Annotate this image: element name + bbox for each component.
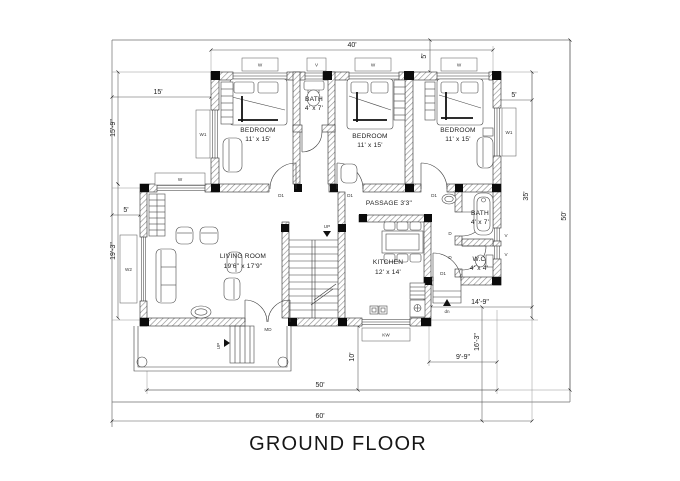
wardrobe-bedroom2 [394,80,405,120]
svg-text:D1: D1 [278,193,284,198]
window1-label: W1 [506,130,513,135]
rear-steps-arrow [443,299,451,306]
dim-15ft: 15' [153,89,162,96]
porch-up-label: UP [216,343,221,349]
dim-16ft3: 16'-3" [474,333,481,351]
veranda: UP [134,326,291,371]
bedroom1-size: 11' x 15' [245,136,270,143]
dim-5ft-left: 5' [123,207,128,214]
bath-right-name: BATH [471,210,489,217]
bedroom3-size: 11' x 15' [445,136,470,143]
window1-label: W1 [200,132,207,137]
chair-bedroom2 [341,164,357,183]
window-label: W [258,63,263,68]
ventilator-bath-top: V [305,58,326,79]
chair-bedroom1 [223,138,242,172]
window-living-top: W [155,173,205,191]
armchair-living-1 [176,227,193,244]
armchair-living-2 [200,227,218,244]
dim-14ft9: 14'-9" [471,299,489,306]
dim-35ft: 35' [523,191,530,200]
armchair-living-4 [224,278,240,300]
dim-9ft9: 9'-9" [456,354,470,361]
svg-text:D1: D1 [440,271,446,276]
page-title: GROUND FLOOR [249,433,427,455]
door-bedroom1: D1 [270,163,296,198]
fridge-kitchen [410,283,425,299]
svg-text:D1: D1 [347,193,353,198]
window2-label: W2 [125,267,132,272]
kitchen-size: 12' x 14' [375,269,401,276]
dim-5ft-right: 5' [511,92,516,99]
rear-down-label: dn [444,309,450,314]
porch-up-arrow [224,339,230,347]
window-bedroom1: W [233,58,287,79]
basin-lobby [442,194,456,204]
ventilator-label: V [504,252,508,257]
bedroom1-name: BEDROOM [240,127,275,134]
sofa-living [156,249,176,303]
bath-right-size: 4' x 7' [471,219,489,226]
floor-plan-drawing: 40' 5' 5' 15' 15'-9" 5' 19'-3" 35' 50' 5… [0,0,680,481]
bed-bedroom1 [230,79,287,125]
dim-50ft-right: 50' [561,211,568,220]
stairs-up-label: UP [324,224,330,229]
window-w1-left: W1 [196,110,218,158]
dim-40ft: 40' [347,42,356,49]
main-door-label: MD [264,327,272,332]
dim-60ft: 60' [315,413,324,420]
window-bedroom3: W [437,58,489,79]
dim-15ft9: 15'-9" [110,119,117,137]
bedroom3-name: BEDROOM [440,127,475,134]
dining-set-kitchen [382,222,423,262]
dim-50ft-bottom: 50' [315,382,324,389]
window-label: W [178,177,183,182]
chair-bedroom3 [477,137,493,168]
ventilator-wc: V [495,246,509,259]
living-size: 19'6" x 17'9" [224,263,263,270]
sink-kitchen [410,300,425,317]
wc-size: 4' x 4' [470,265,488,272]
dim-5ft-top: 5' [421,53,428,58]
rear-steps: dn [433,285,461,314]
window-label: W [457,63,462,68]
window-bedroom2: W [349,58,399,79]
ventilator-label: V [504,233,508,238]
door-bath-top [302,132,322,152]
bookshelf-living [149,194,165,236]
dim-19ft3: 19'-3" [110,242,117,260]
stove-kitchen [370,306,387,314]
living-name: LIVING ROOM [220,253,266,260]
bath-top-name: BATH [305,96,323,103]
wc-name: W.C [472,256,485,263]
table-living [191,306,211,318]
bed-bedroom2 [347,79,393,129]
wardrobe-bedroom1 [221,82,233,124]
svg-text:D1: D1 [431,193,437,198]
door-bedroom3: D1 [421,163,447,198]
window-w1-right: W1 [495,108,517,156]
kitchen-name: KITCHEN [373,259,403,266]
bedroom2-size: 11' x 15' [357,142,382,149]
ventilator-bath-right: V [495,228,509,241]
window-w2: W2 [120,235,146,303]
dim-10ft: 10' [349,352,356,361]
stairs-up-arrow [323,231,331,237]
kitchen-window-label: KW [382,333,390,338]
window-label: W [371,63,376,68]
staircase: UP [289,224,338,318]
floor-plan-sheet: 40' 5' 5' 15' 15'-9" 5' 19'-3" 35' 50' 5… [0,0,680,481]
bedroom2-name: BEDROOM [352,133,387,140]
bath-top-size: 4' x 7' [305,105,323,112]
passage-name: PASSAGE 3'3" [366,200,413,207]
svg-text:D: D [448,231,452,236]
window-kitchen: KW [362,320,410,342]
bed-bedroom3 [437,79,483,125]
